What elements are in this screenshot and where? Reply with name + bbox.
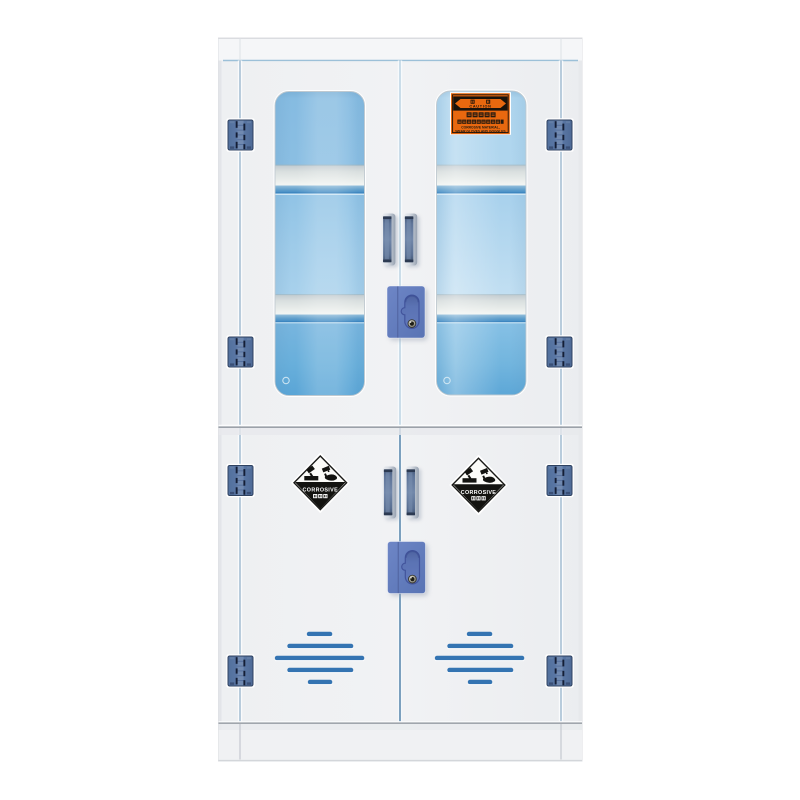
svg-text:WEAR GLOVES AND GOGGLES: WEAR GLOVES AND GOGGLES (455, 129, 506, 133)
svg-text:CAUTION: CAUTION (469, 105, 491, 109)
